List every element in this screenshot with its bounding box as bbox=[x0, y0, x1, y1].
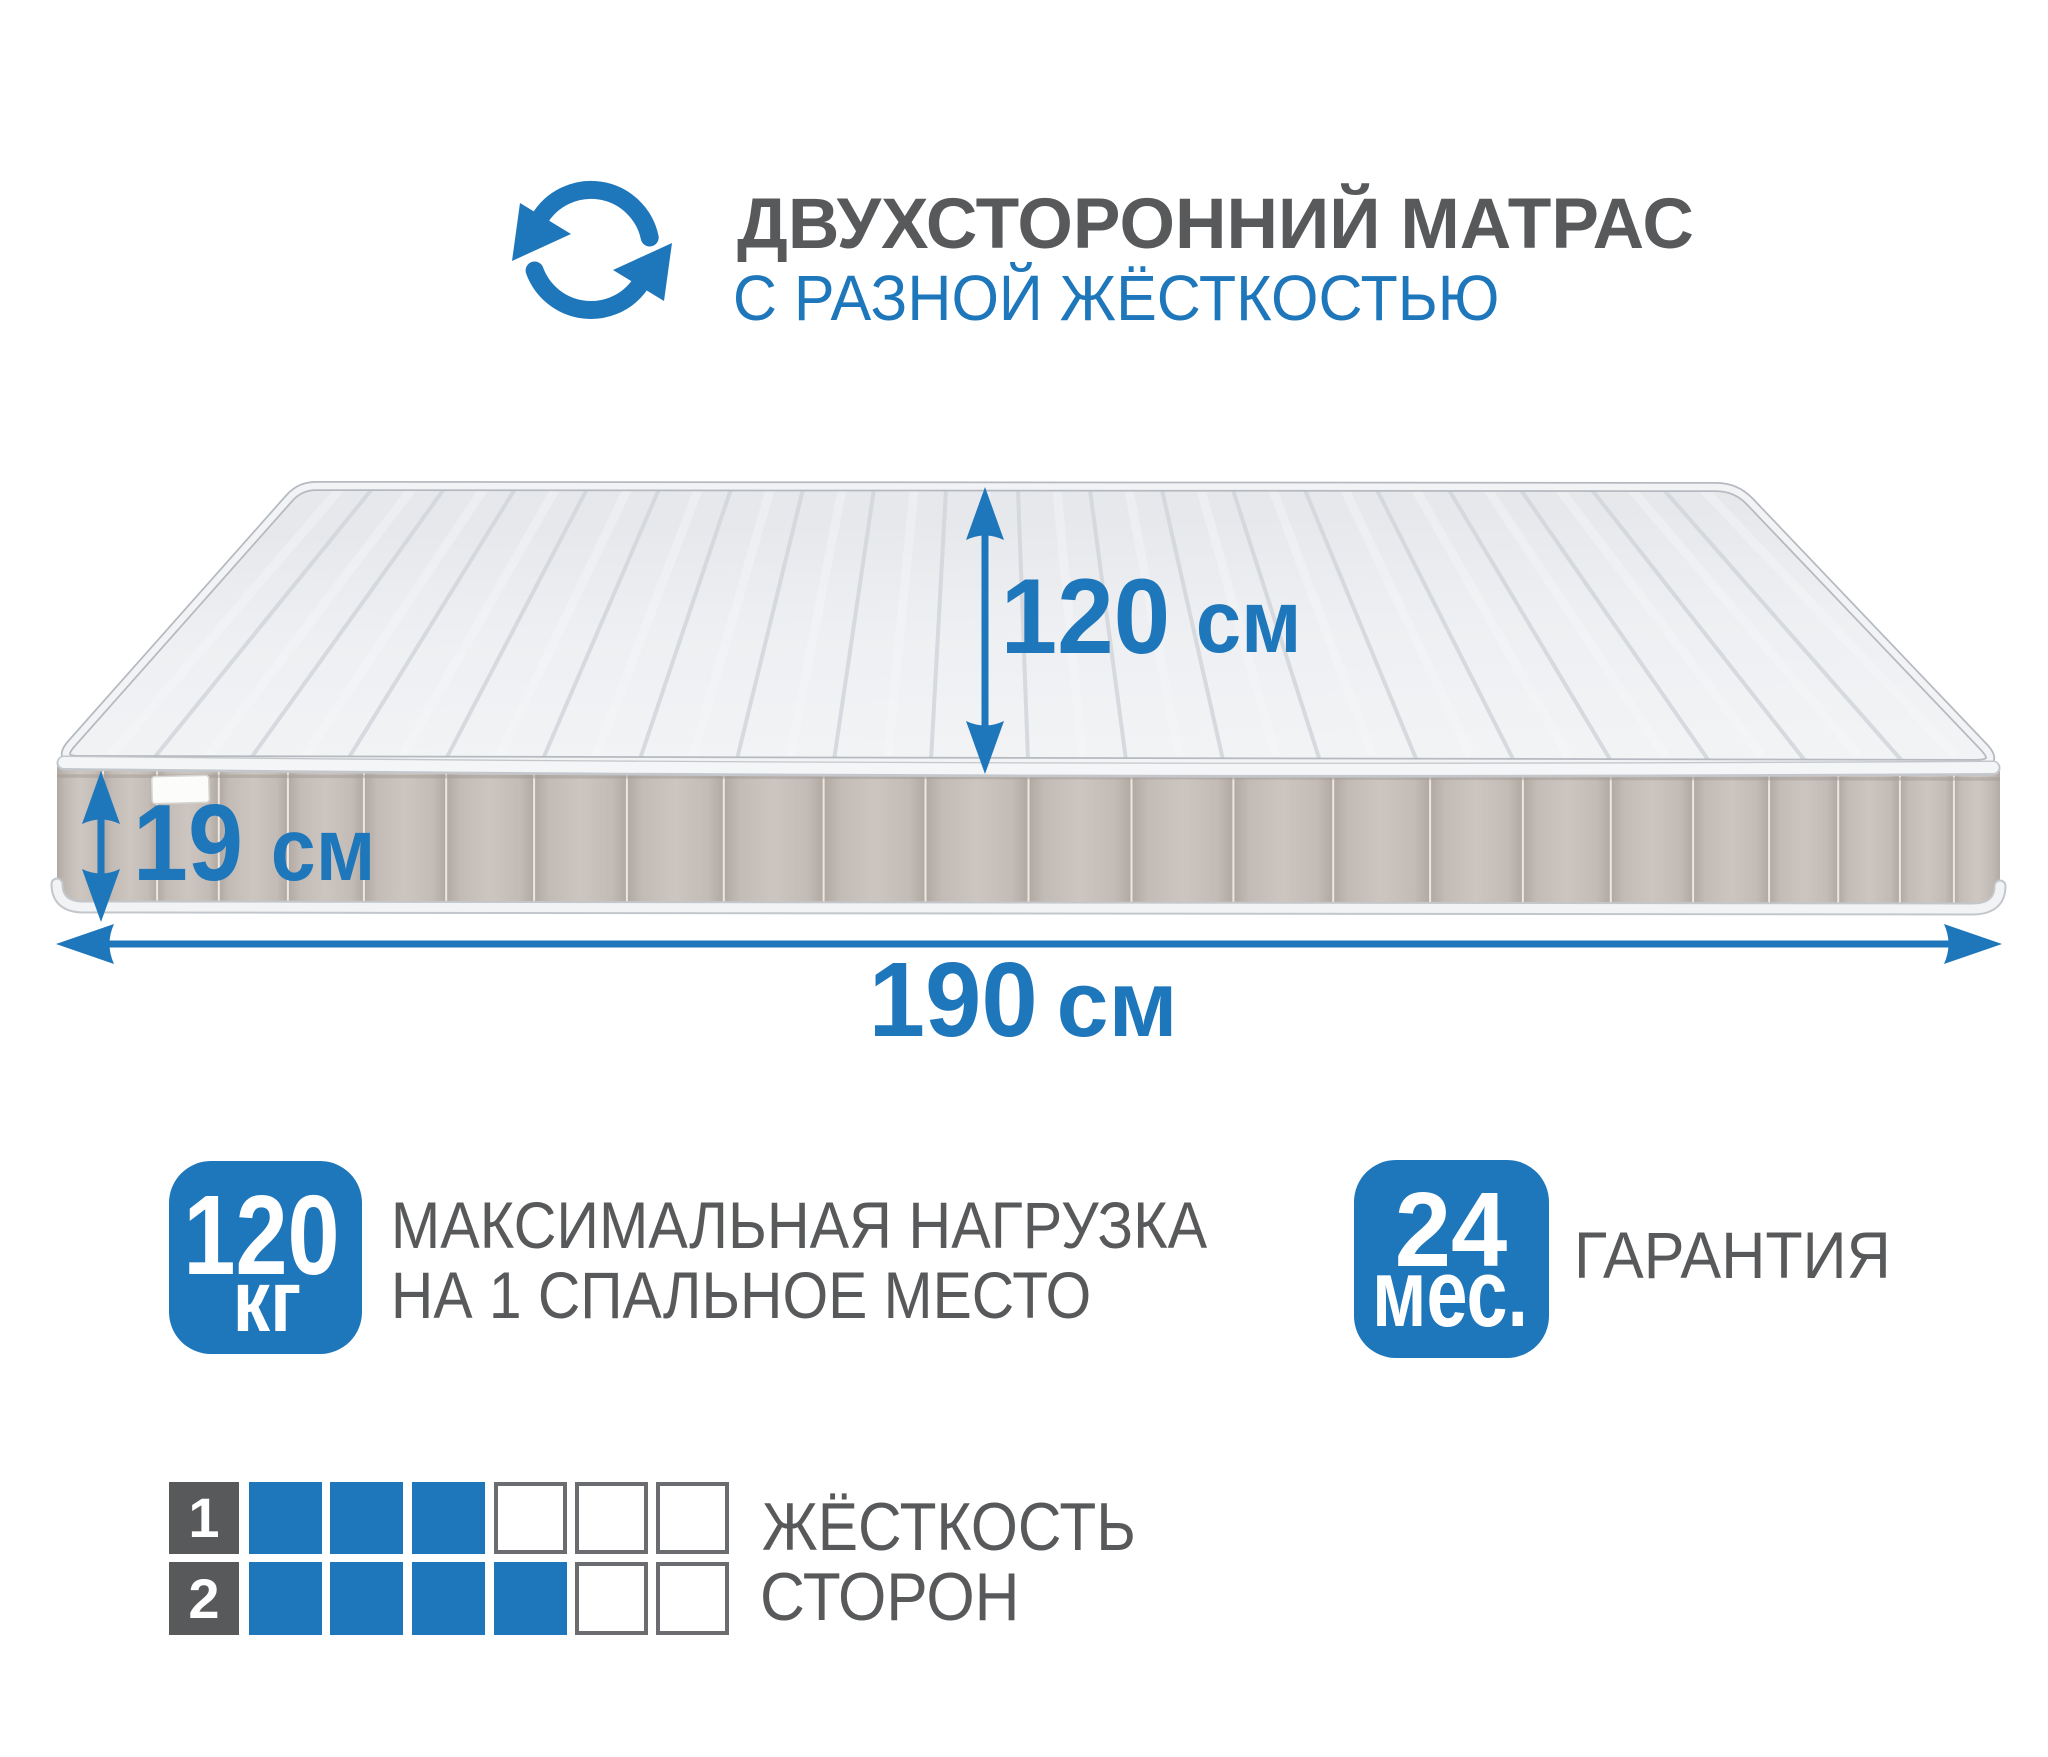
svg-text:120: 120 bbox=[1001, 558, 1171, 677]
svg-text:см: см bbox=[1057, 951, 1178, 1056]
svg-text:1: 1 bbox=[188, 1486, 219, 1549]
svg-text:19: 19 bbox=[133, 783, 243, 904]
svg-text:ГАРАНТИЯ: ГАРАНТИЯ bbox=[1574, 1219, 1891, 1293]
svg-text:ЖЁСТКОСТЬ: ЖЁСТКОСТЬ bbox=[762, 1489, 1136, 1565]
svg-text:ДВУХСТОРОННИЙ МАТРАС: ДВУХСТОРОННИЙ МАТРАС bbox=[737, 184, 1694, 264]
svg-text:мес.: мес. bbox=[1372, 1241, 1528, 1348]
svg-text:190: 190 bbox=[869, 940, 1038, 1059]
svg-text:НА 1 СПАЛЬНОЕ МЕСТО: НА 1 СПАЛЬНОЕ МЕСТО bbox=[391, 1259, 1091, 1333]
svg-text:см: см bbox=[271, 800, 376, 899]
svg-text:С РАЗНОЙ ЖЁСТКОСТЬЮ: С РАЗНОЙ ЖЁСТКОСТЬЮ bbox=[733, 262, 1500, 335]
svg-text:см: см bbox=[1196, 573, 1302, 672]
svg-text:2: 2 bbox=[188, 1567, 219, 1630]
svg-text:МАКСИМАЛЬНАЯ НАГРУЗКА: МАКСИМАЛЬНАЯ НАГРУЗКА bbox=[391, 1189, 1207, 1263]
svg-text:СТОРОН: СТОРОН bbox=[760, 1558, 1020, 1634]
svg-text:кг: кг bbox=[233, 1254, 302, 1351]
